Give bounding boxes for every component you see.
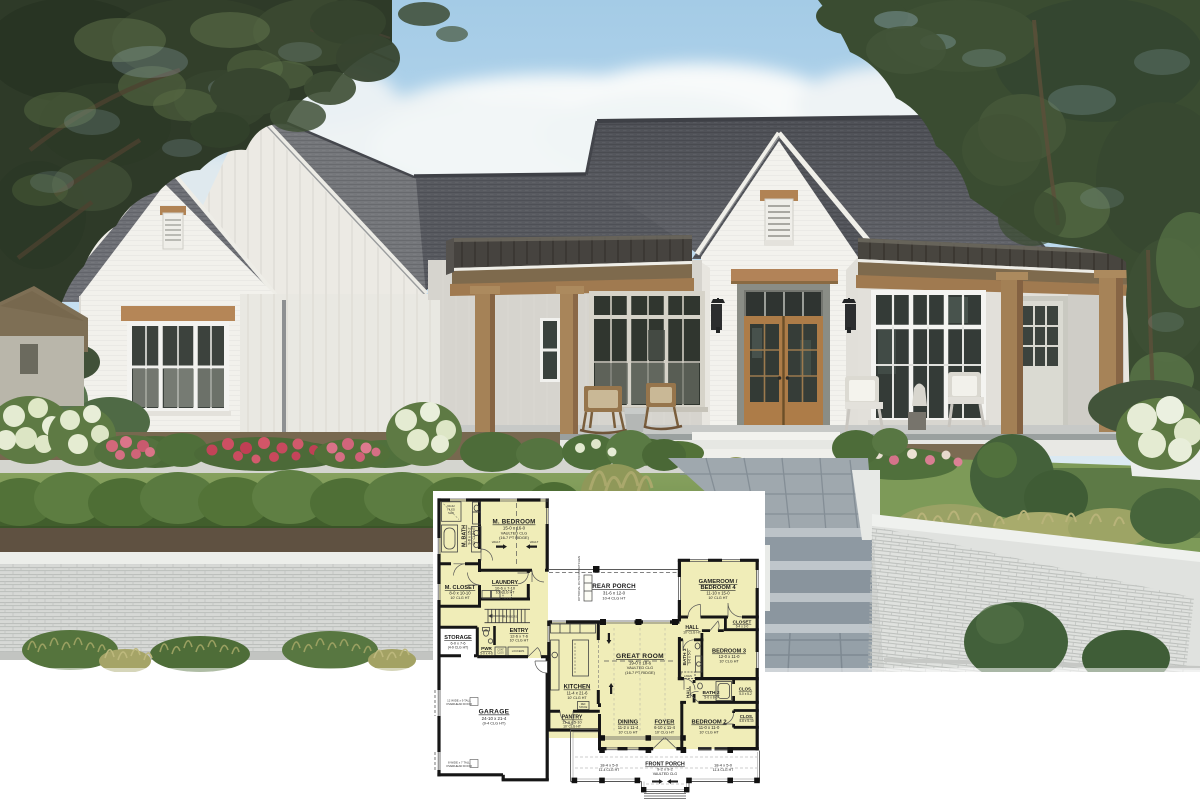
svg-text:12-6 x 7-6: 12-6 x 7-6 [510,633,529,638]
svg-text:5-6 x 5-10: 5-6 x 5-10 [739,719,754,723]
svg-text:REAR PORCH: REAR PORCH [592,583,636,590]
svg-text:HALL: HALL [686,686,691,698]
svg-text:10-4 CLG HT: 10-4 CLG HT [602,596,626,601]
svg-text:10' CLG HT: 10' CLG HT [618,731,638,735]
svg-text:10-6 x 7-10: 10-6 x 7-10 [495,585,516,590]
svg-text:(4-9 CLG HT): (4-9 CLG HT) [448,646,469,650]
svg-text:11-2 x 11-4: 11-2 x 11-4 [618,725,639,730]
svg-text:12-0 x 11-0: 12-0 x 11-0 [719,654,741,659]
svg-text:LOCKERS: LOCKERS [512,649,525,653]
svg-text:10' CLG HT: 10' CLG HT [496,591,516,595]
svg-text:10' CLG HT: 10' CLG HT [450,596,470,600]
svg-text:10' CLG HT: 10' CLG HT [683,631,701,635]
svg-text:10' CLG HT: 10' CLG HT [563,724,581,728]
svg-text:8-0 x 10-10: 8-0 x 10-10 [449,591,471,596]
svg-text:10' CLG HT: 10' CLG HT [699,731,719,735]
svg-text:SHR: SHR [448,511,454,515]
svg-text:10' CLG HT: 10' CLG HT [510,639,530,643]
svg-text:9-6 x 5-0: 9-6 x 5-0 [688,650,692,663]
svg-text:5-0 x 5-2: 5-0 x 5-2 [739,692,752,696]
svg-text:9-2 x 9-2: 9-2 x 9-2 [657,767,674,772]
svg-text:VAULT: VAULT [492,540,501,544]
svg-text:10' CLG HT: 10' CLG HT [719,660,739,664]
svg-text:OVERHEAD DOOR: OVERHEAD DOOR [446,702,472,706]
svg-text:SPACE: SPACE [579,706,588,709]
svg-text:24-10 x 21-4: 24-10 x 21-4 [482,716,507,721]
svg-text:11-0 x 11-0: 11-0 x 11-0 [699,725,720,730]
svg-text:VAULTED CLG: VAULTED CLG [653,772,678,776]
svg-text:11-4 x 21-6: 11-4 x 21-6 [567,690,589,695]
svg-text:M. BEDROOM: M. BEDROOM [493,519,536,526]
svg-text:11-10 x 15-0: 11-10 x 15-0 [706,591,730,596]
svg-text:PWR: PWR [481,646,492,651]
svg-text:10' CLG HT: 10' CLG HT [708,596,728,600]
svg-text:18-4 x 5-0: 18-4 x 5-0 [714,763,733,768]
svg-text:(16-7 PT RIDGE): (16-7 PT RIDGE) [499,535,529,540]
svg-text:16 RISERS: 16 RISERS [503,615,517,619]
svg-text:OPTIONAL OUTDOOR KITCHEN: OPTIONAL OUTDOOR KITCHEN [577,556,581,601]
svg-text:(9-4 CLG HT): (9-4 CLG HT) [483,722,507,726]
svg-text:OVERHEAD DOOR: OVERHEAD DOOR [446,764,472,768]
svg-text:CLOS: CLOS [497,652,504,655]
svg-text:11-4 CLG HT: 11-4 CLG HT [599,768,620,772]
svg-text:CLOSET: CLOSET [733,619,752,624]
svg-text:GARAGE: GARAGE [479,709,510,716]
svg-text:10' CLG HT: 10' CLG HT [567,696,587,700]
svg-text:10' CLG HT: 10' CLG HT [472,527,476,545]
svg-text:VAULT: VAULT [530,540,539,544]
svg-text:10' CLG HT: 10' CLG HT [655,731,675,735]
svg-text:6-10 x 11-4: 6-10 x 11-4 [654,725,676,730]
svg-text:18-4 x 5-0: 18-4 x 5-0 [600,763,619,768]
svg-text:(16-7 PT RIDGE): (16-7 PT RIDGE) [625,670,655,675]
svg-text:11-4 CLG HT: 11-4 CLG HT [713,768,734,772]
svg-text:6-4 x 3-0: 6-4 x 3-0 [736,625,749,629]
svg-text:STORAGE: STORAGE [444,635,472,641]
svg-text:LINEN: LINEN [684,674,692,678]
svg-text:5-0 x 4-6: 5-0 x 4-6 [480,651,493,655]
